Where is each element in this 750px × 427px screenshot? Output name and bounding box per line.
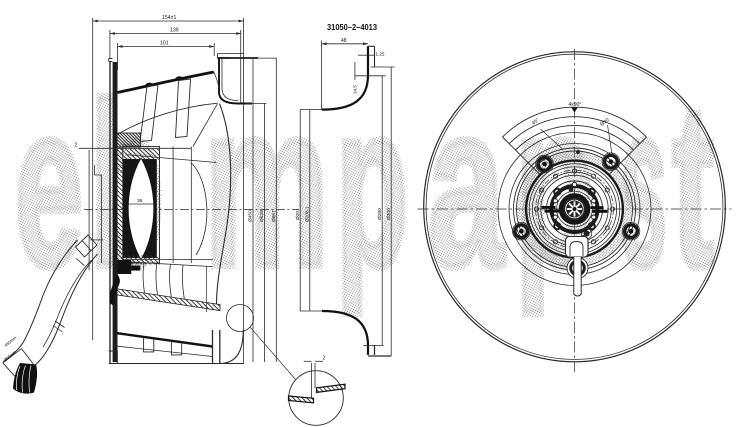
svg-text:Ø450: Ø450 — [248, 210, 254, 222]
svg-text:Ø657: Ø657 — [271, 210, 277, 222]
svg-text:Ø201: Ø201 — [295, 208, 301, 220]
svg-text:101: 101 — [160, 41, 169, 47]
svg-text:Ø208.1: Ø208.1 — [304, 206, 310, 222]
svg-text:4x90°: 4x90° — [569, 102, 582, 108]
svg-text:14.5: 14.5 — [353, 85, 358, 94]
svg-text:450mm: 450mm — [3, 335, 17, 348]
svg-text:31050–2–4013: 31050–2–4013 — [327, 23, 378, 32]
svg-text:p: p — [336, 56, 408, 315]
svg-text:139: 139 — [170, 28, 179, 34]
svg-text:2: 2 — [323, 356, 326, 362]
svg-text:m: m — [204, 56, 329, 315]
svg-text:154±1: 154±1 — [162, 15, 177, 21]
svg-text:48: 48 — [341, 38, 347, 44]
svg-text:2: 2 — [75, 143, 78, 149]
svg-text:Ø300: Ø300 — [386, 208, 392, 220]
svg-text:Ø90: Ø90 — [599, 117, 610, 127]
svg-text:36: 36 — [137, 198, 143, 204]
svg-text:e: e — [15, 56, 83, 315]
svg-text:Ø50mm: Ø50mm — [2, 349, 17, 363]
svg-text:1.25: 1.25 — [376, 52, 385, 57]
svg-text:Ø628: Ø628 — [259, 210, 265, 222]
svg-text:Ø280: Ø280 — [377, 208, 383, 220]
